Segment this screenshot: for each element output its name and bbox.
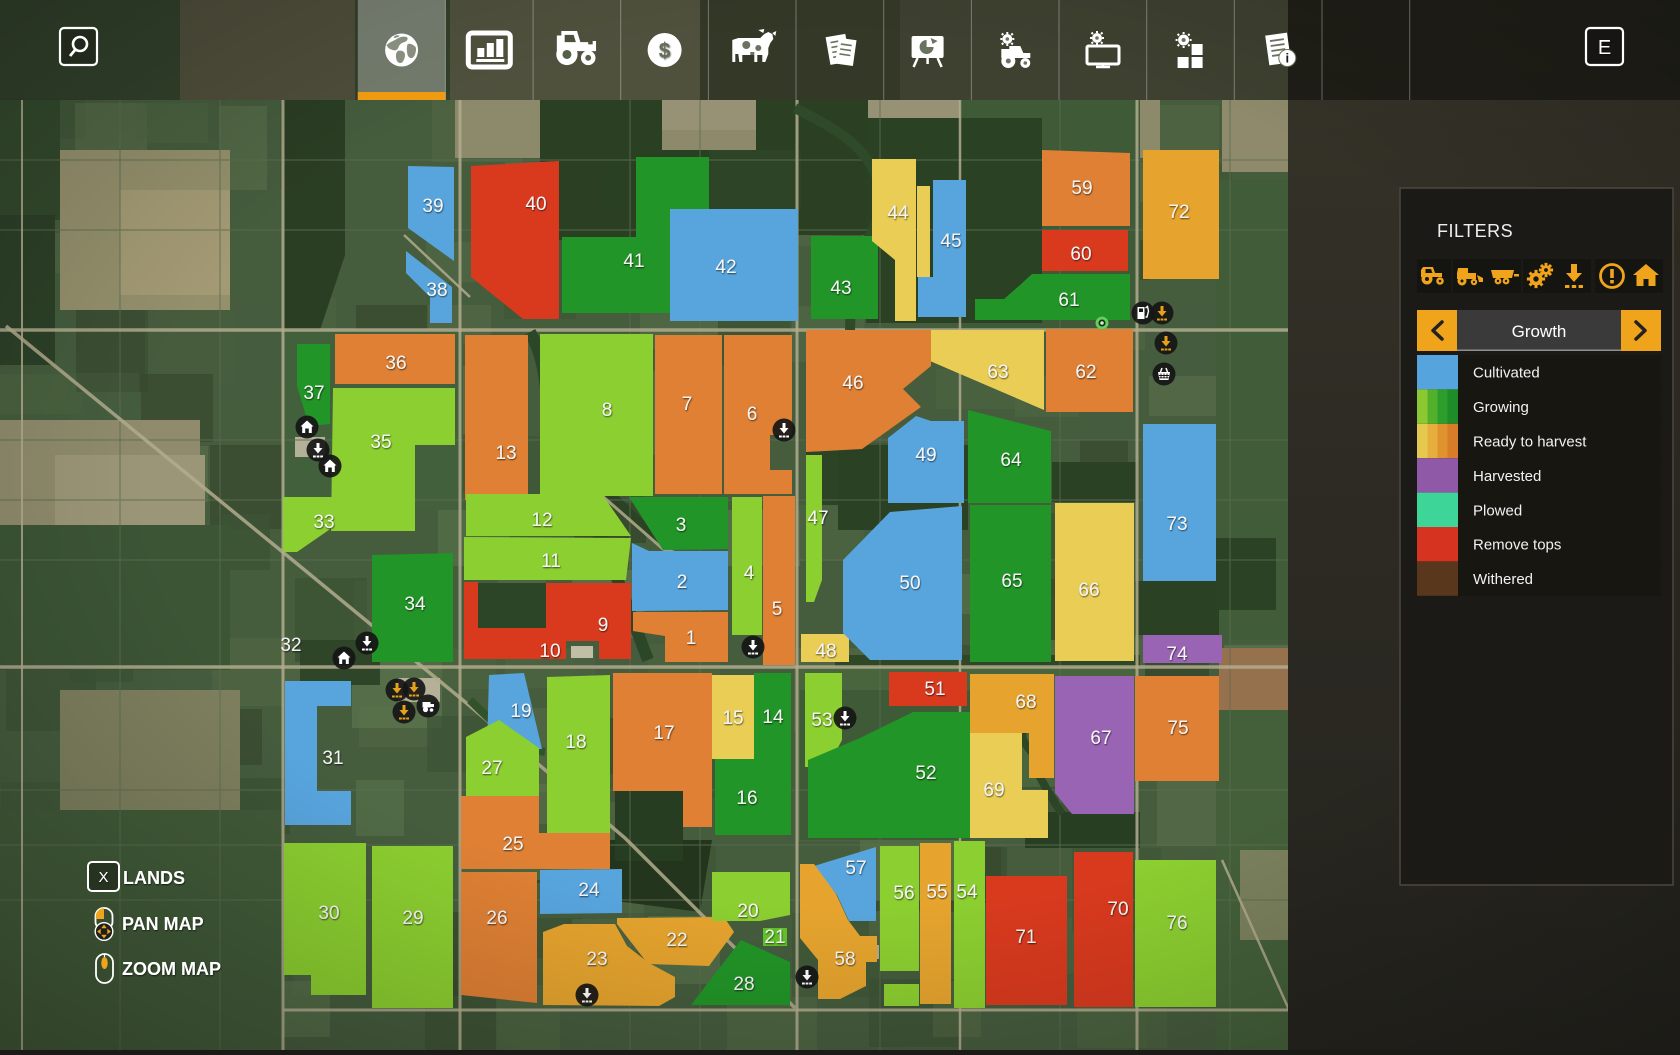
svg-text:Withered: Withered bbox=[1473, 571, 1533, 588]
svg-text:i: i bbox=[1285, 51, 1289, 66]
svg-text:FILTERS: FILTERS bbox=[1437, 221, 1513, 241]
svg-text:Growth: Growth bbox=[1512, 322, 1567, 341]
svg-text:X: X bbox=[98, 869, 108, 886]
svg-text:LANDS: LANDS bbox=[123, 868, 185, 888]
svg-text:Harvested: Harvested bbox=[1473, 468, 1541, 485]
svg-text:Cultivated: Cultivated bbox=[1473, 365, 1540, 382]
svg-text:Plowed: Plowed bbox=[1473, 502, 1522, 519]
svg-text:PAN MAP: PAN MAP bbox=[122, 914, 204, 934]
svg-text:$: $ bbox=[659, 40, 671, 63]
svg-text:Remove tops: Remove tops bbox=[1473, 537, 1561, 554]
svg-text:Ready to harvest: Ready to harvest bbox=[1473, 434, 1587, 451]
svg-text:ZOOM MAP: ZOOM MAP bbox=[122, 959, 221, 979]
svg-text:E: E bbox=[1598, 37, 1611, 59]
svg-text:Growing: Growing bbox=[1473, 399, 1529, 416]
